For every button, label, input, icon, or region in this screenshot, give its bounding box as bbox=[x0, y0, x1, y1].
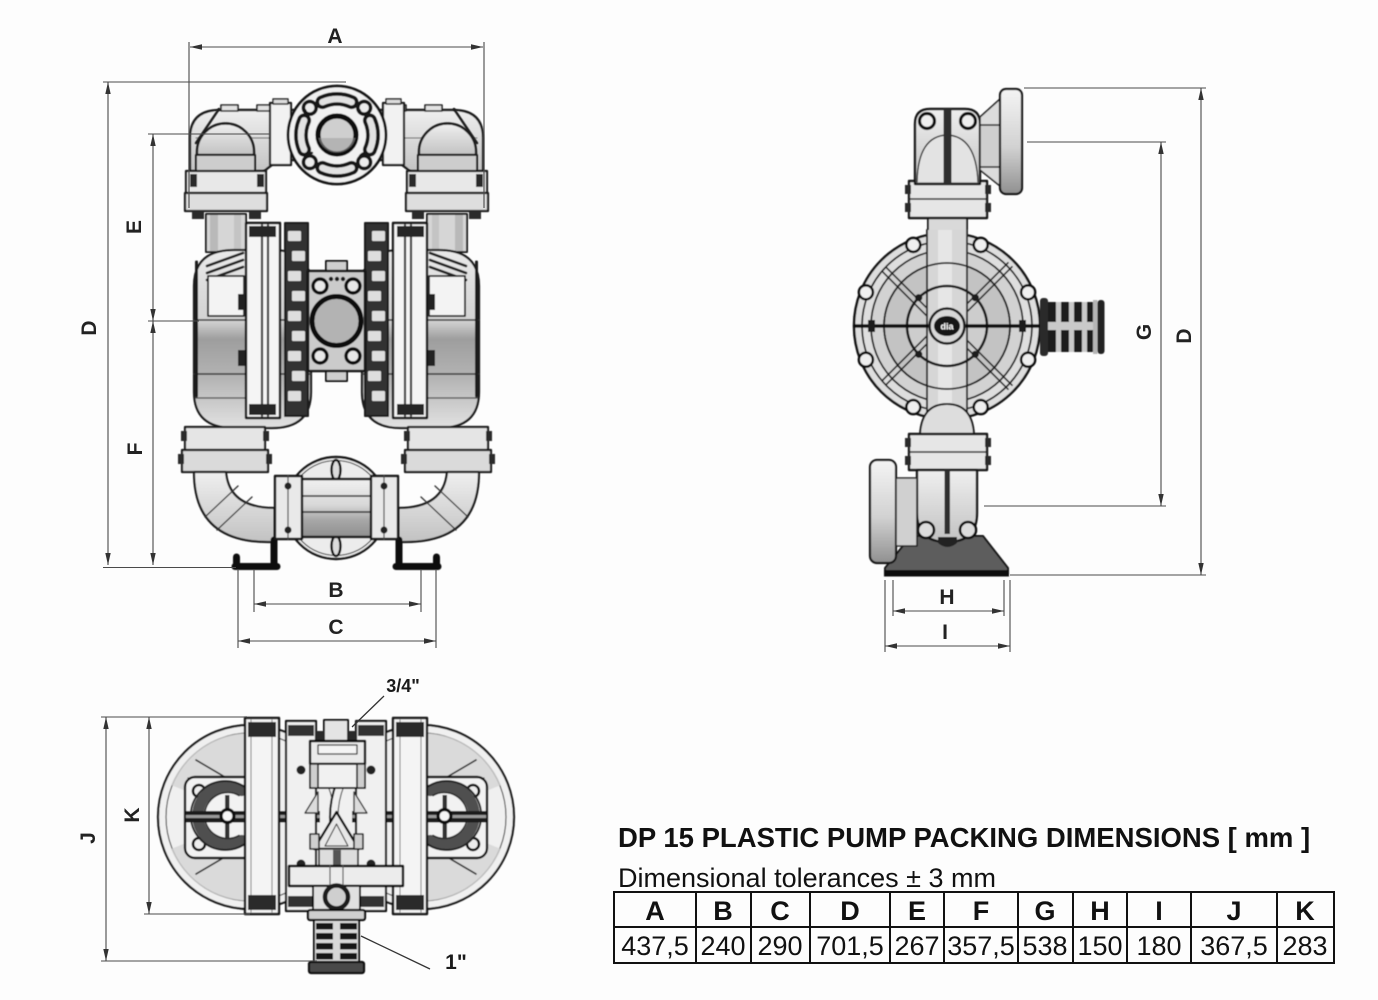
svg-text:I: I bbox=[1155, 896, 1163, 926]
svg-text:538: 538 bbox=[1022, 931, 1067, 961]
svg-text:B: B bbox=[328, 579, 343, 602]
svg-text:F: F bbox=[973, 896, 990, 926]
svg-text:H: H bbox=[1090, 896, 1110, 926]
svg-text:437,5: 437,5 bbox=[621, 931, 689, 961]
svg-text:J: J bbox=[77, 832, 100, 844]
svg-text:J: J bbox=[1226, 896, 1241, 926]
svg-text:D: D bbox=[1173, 328, 1196, 343]
svg-text:283: 283 bbox=[1282, 931, 1327, 961]
svg-text:240: 240 bbox=[700, 931, 745, 961]
svg-text:dia: dia bbox=[940, 322, 954, 332]
svg-text:C: C bbox=[328, 616, 343, 639]
svg-text:357,5: 357,5 bbox=[947, 931, 1015, 961]
svg-text:DP 15 PLASTIC PUMP PACKING DIM: DP 15 PLASTIC PUMP PACKING DIMENSIONS [ … bbox=[618, 822, 1310, 853]
svg-text:G: G bbox=[1034, 896, 1055, 926]
svg-text:A: A bbox=[645, 896, 665, 926]
svg-text:E: E bbox=[908, 896, 926, 926]
svg-text:G: G bbox=[1133, 324, 1156, 340]
svg-text:H: H bbox=[939, 586, 954, 609]
svg-text:267: 267 bbox=[894, 931, 939, 961]
svg-text:D: D bbox=[78, 320, 101, 335]
svg-text:367,5: 367,5 bbox=[1200, 931, 1268, 961]
svg-text:3/4": 3/4" bbox=[386, 676, 420, 696]
svg-text:1": 1" bbox=[445, 951, 467, 974]
svg-text:E: E bbox=[123, 220, 146, 234]
svg-text:290: 290 bbox=[757, 931, 802, 961]
svg-text:K: K bbox=[1295, 896, 1315, 926]
svg-text:I: I bbox=[942, 621, 948, 644]
svg-text:C: C bbox=[770, 896, 790, 926]
svg-text:180: 180 bbox=[1136, 931, 1181, 961]
svg-text:B: B bbox=[713, 896, 733, 926]
svg-text:701,5: 701,5 bbox=[816, 931, 884, 961]
svg-text:A: A bbox=[327, 25, 342, 48]
svg-text:K: K bbox=[121, 807, 144, 822]
svg-text:D: D bbox=[840, 896, 860, 926]
svg-text:Dimensional tolerances ± 3 mm: Dimensional tolerances ± 3 mm bbox=[618, 863, 996, 893]
svg-text:F: F bbox=[124, 442, 147, 455]
svg-text:150: 150 bbox=[1077, 931, 1122, 961]
